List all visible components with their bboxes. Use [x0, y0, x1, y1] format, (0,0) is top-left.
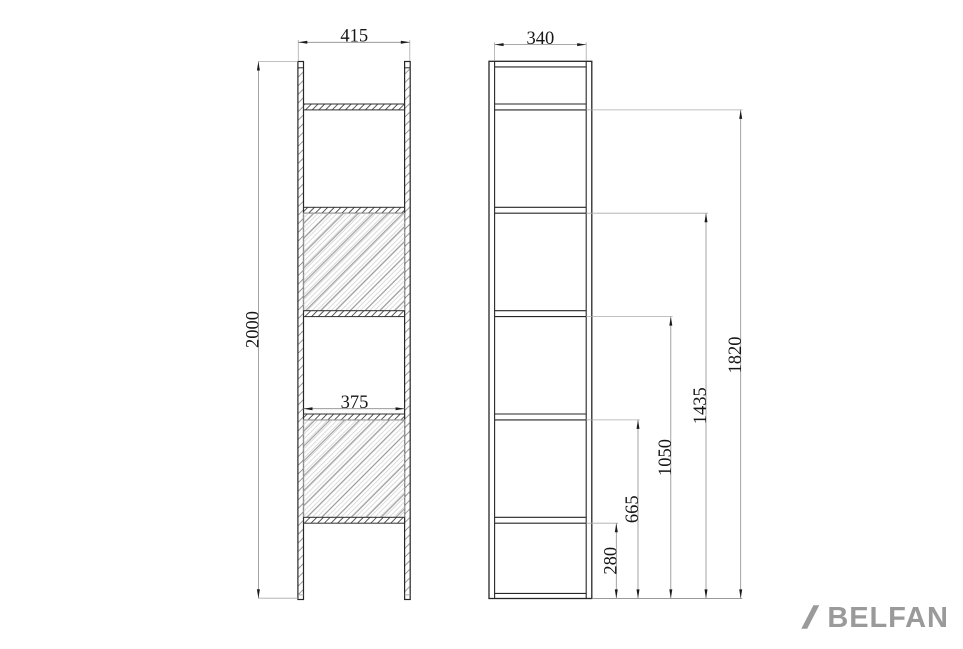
svg-text:BELFAN: BELFAN [827, 602, 948, 634]
svg-text:280: 280 [602, 547, 622, 575]
svg-text:665: 665 [623, 495, 643, 523]
svg-text:1820: 1820 [726, 337, 746, 374]
svg-text:340: 340 [527, 29, 555, 49]
svg-text:1050: 1050 [656, 439, 676, 476]
svg-text:2000: 2000 [244, 311, 264, 348]
svg-text:375: 375 [341, 393, 369, 413]
svg-text:415: 415 [340, 27, 368, 47]
svg-text:1435: 1435 [691, 387, 711, 424]
